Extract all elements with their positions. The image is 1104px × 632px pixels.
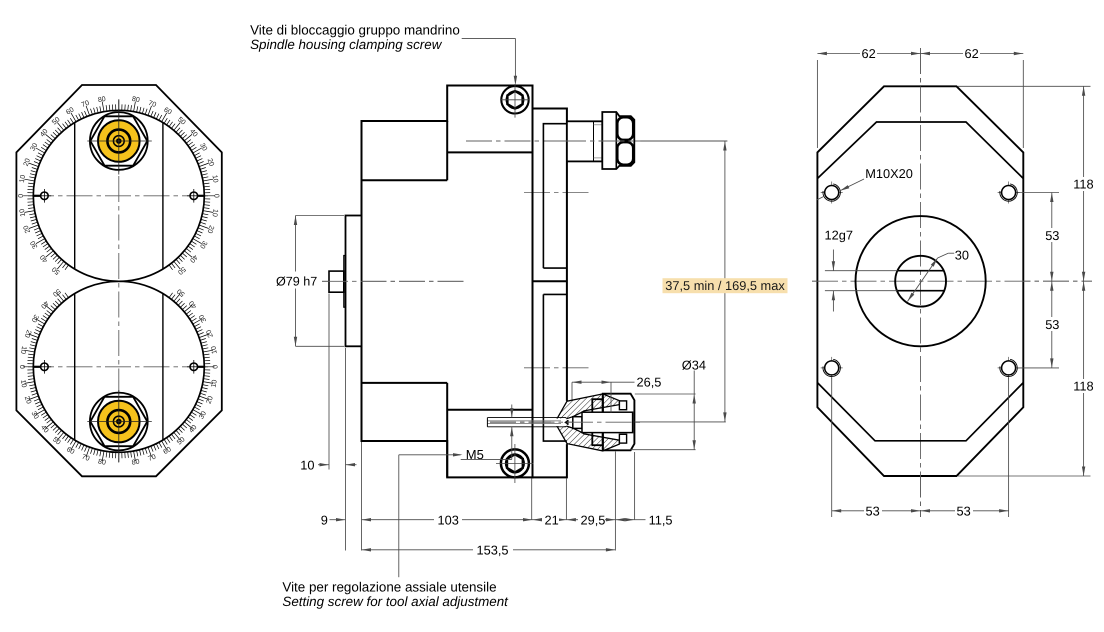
svg-text:118: 118 xyxy=(1073,379,1093,394)
svg-text:Vite per regolazione assiale u: Vite per regolazione assiale utensile xyxy=(282,580,496,595)
svg-text:12g7: 12g7 xyxy=(825,227,853,242)
svg-text:0: 0 xyxy=(18,194,25,198)
svg-text:10: 10 xyxy=(210,174,218,183)
svg-text:10: 10 xyxy=(19,174,27,183)
svg-text:53: 53 xyxy=(1045,317,1059,332)
svg-text:0: 0 xyxy=(18,365,25,369)
svg-text:53: 53 xyxy=(957,504,971,519)
svg-text:Setting screw for tool axial a: Setting screw for tool axial adjustment xyxy=(282,594,509,609)
svg-text:0: 0 xyxy=(213,365,220,369)
svg-text:10: 10 xyxy=(300,457,314,472)
svg-text:80: 80 xyxy=(131,96,140,104)
svg-text:Spindle housing clamping screw: Spindle housing clamping screw xyxy=(250,37,443,52)
svg-text:80: 80 xyxy=(131,458,140,466)
svg-text:21: 21 xyxy=(545,512,559,527)
svg-text:10: 10 xyxy=(210,379,218,388)
svg-text:26,5: 26,5 xyxy=(637,375,662,390)
svg-text:10: 10 xyxy=(210,208,218,217)
svg-text:118: 118 xyxy=(1073,177,1093,192)
svg-text:80: 80 xyxy=(97,96,106,104)
svg-text:53: 53 xyxy=(866,504,880,519)
svg-text:10: 10 xyxy=(19,208,27,217)
svg-text:80: 80 xyxy=(97,458,106,466)
svg-text:62: 62 xyxy=(862,46,876,61)
svg-text:62: 62 xyxy=(965,46,979,61)
svg-text:10: 10 xyxy=(19,379,27,388)
svg-text:Vite di bloccaggio gruppo mand: Vite di bloccaggio gruppo mandrino xyxy=(250,23,460,38)
svg-text:10: 10 xyxy=(210,345,218,354)
svg-text:M10X20: M10X20 xyxy=(865,166,913,181)
svg-text:0: 0 xyxy=(213,194,220,198)
svg-text:153,5: 153,5 xyxy=(477,542,509,557)
svg-text:11,5: 11,5 xyxy=(649,512,673,527)
svg-text:53: 53 xyxy=(1045,228,1059,243)
svg-text:Ø34: Ø34 xyxy=(682,357,706,372)
svg-text:29,5: 29,5 xyxy=(581,512,606,527)
svg-text:37,5 min / 169,5 max: 37,5 min / 169,5 max xyxy=(665,278,785,293)
svg-text:30: 30 xyxy=(955,248,969,263)
svg-text:103: 103 xyxy=(438,512,459,527)
svg-text:9: 9 xyxy=(321,512,328,527)
svg-text:Ø79 h7: Ø79 h7 xyxy=(276,274,317,288)
svg-text:10: 10 xyxy=(19,345,27,354)
